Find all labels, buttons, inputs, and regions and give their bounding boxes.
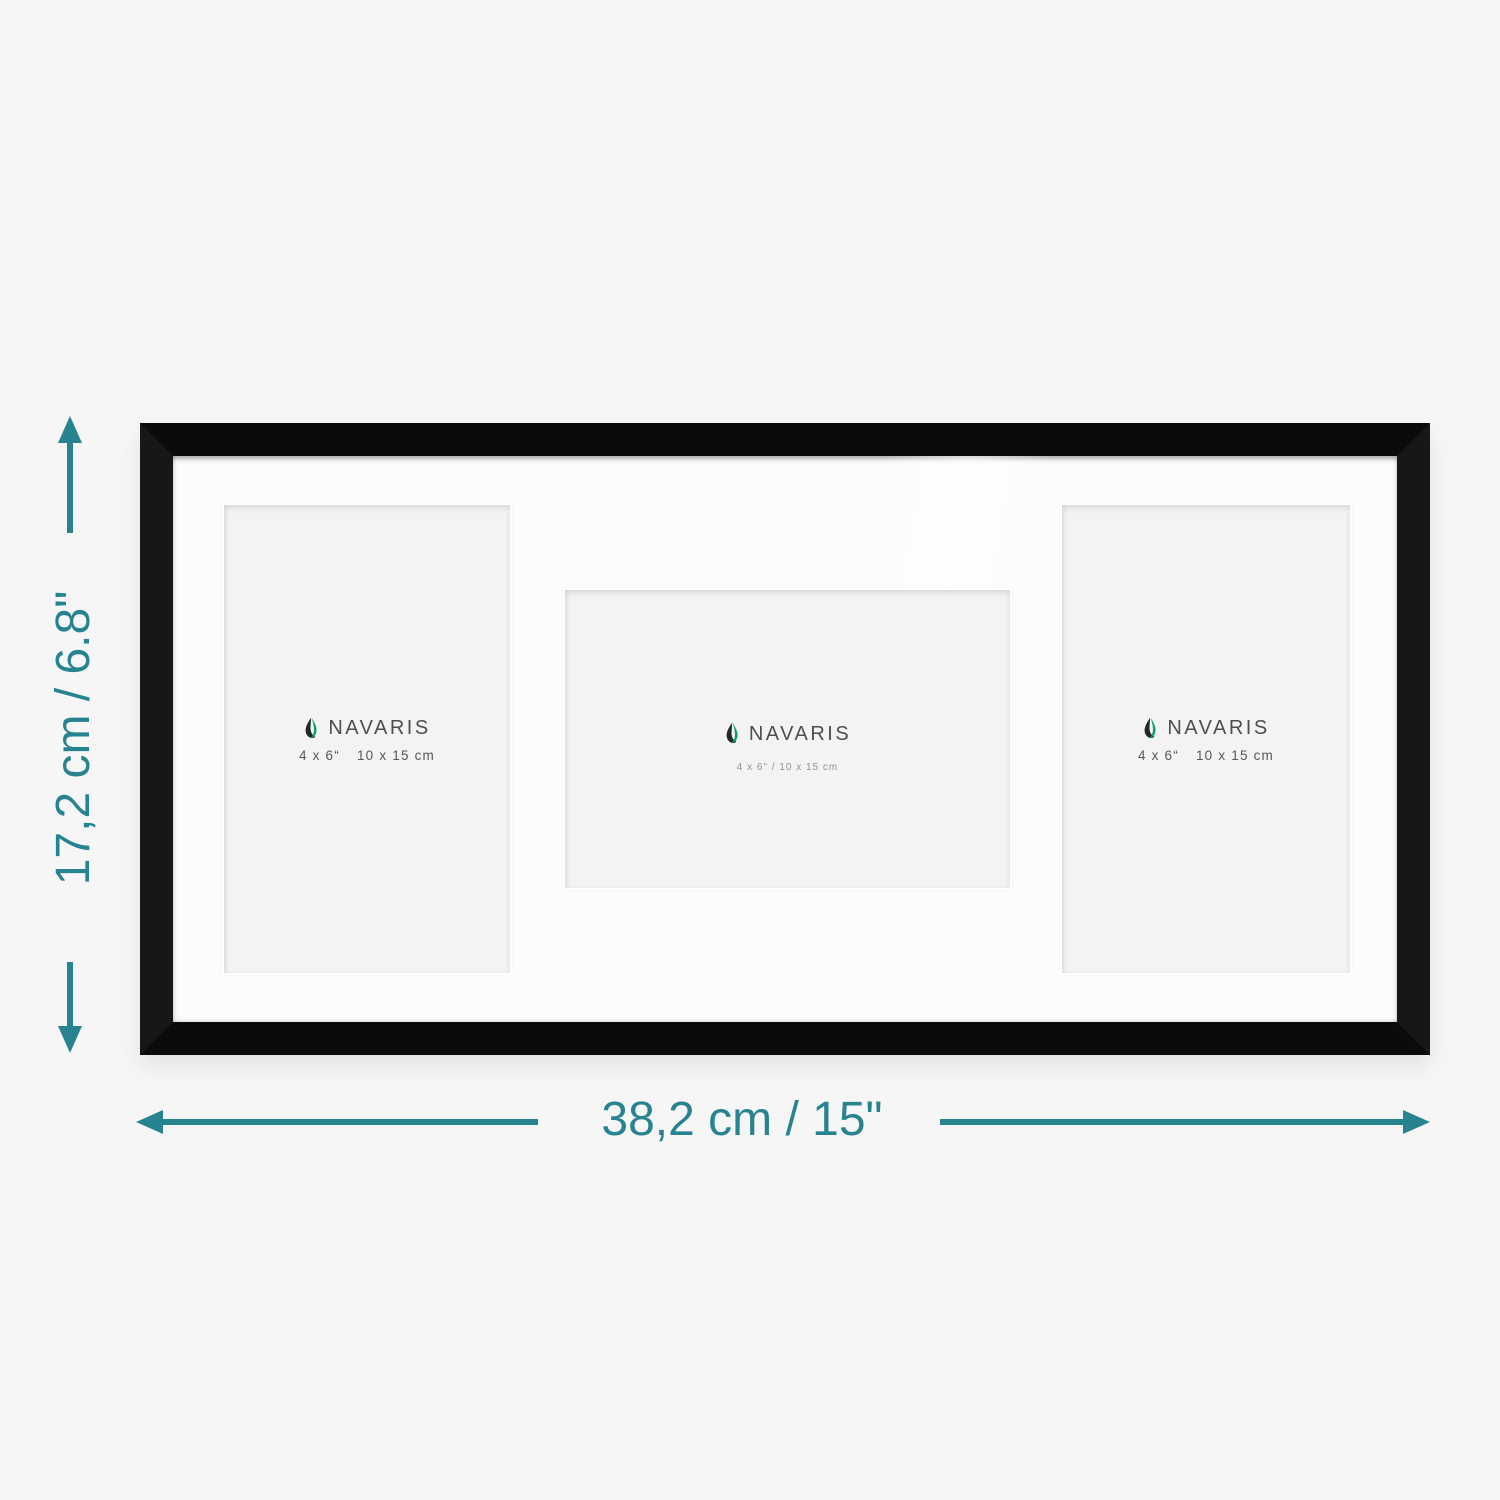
brand-name: NAVARIS — [749, 724, 851, 744]
height-dimension-line-top — [67, 440, 73, 533]
brand-name: NAVARIS — [328, 718, 430, 738]
photo-size-cm: 10 x 15 cm — [357, 749, 435, 763]
photo-opening-left: NAVARIS 4 x 6“ 10 x 15 cm — [222, 503, 512, 975]
picture-frame: NAVARIS 4 x 6“ 10 x 15 cm — [140, 423, 1430, 1055]
placeholder-content: NAVARIS 4 x 6“ 10 x 15 cm — [299, 716, 435, 763]
arrow-left-icon — [136, 1110, 163, 1134]
navaris-logo-icon — [724, 721, 740, 746]
photo-size-inches: 4 x 6“ — [1138, 749, 1179, 763]
size-row: 4 x 6“ 10 x 15 cm — [1138, 749, 1274, 763]
mat-board: NAVARIS 4 x 6“ 10 x 15 cm — [173, 456, 1397, 1022]
photo-size-inches: 4 x 6“ — [299, 749, 340, 763]
navaris-logo-icon — [1142, 716, 1158, 741]
arrow-right-icon — [1403, 1110, 1430, 1134]
height-dimension-line-bottom — [67, 962, 73, 1030]
brand-name: NAVARIS — [1167, 718, 1269, 738]
photo-size-cm: 10 x 15 cm — [1196, 749, 1274, 763]
arrow-up-icon — [58, 416, 82, 443]
width-dimension-line-right — [940, 1119, 1404, 1125]
brand-row: NAVARIS — [303, 716, 430, 741]
photo-opening-right: NAVARIS 4 x 6“ 10 x 15 cm — [1060, 503, 1352, 975]
photo-size-label: 4 x 6" / 10 x 15 cm — [737, 763, 838, 773]
size-row: 4 x 6“ 10 x 15 cm — [299, 749, 435, 763]
arrow-down-icon — [58, 1026, 82, 1053]
width-dimension-label: 38,2 cm / 15" — [542, 1094, 942, 1146]
brand-row: NAVARIS — [1142, 716, 1269, 741]
product-image-scene: 17,2 cm / 6.8" NAVARIS — [0, 0, 1500, 1500]
photo-opening-center: NAVARIS 4 x 6" / 10 x 15 cm — [563, 588, 1012, 890]
navaris-logo-icon — [303, 716, 319, 741]
height-dimension-label: 17,2 cm / 6.8" — [48, 543, 100, 933]
width-dimension-line-left — [161, 1119, 538, 1125]
placeholder-content: NAVARIS 4 x 6" / 10 x 15 cm — [724, 721, 851, 773]
brand-row: NAVARIS — [724, 721, 851, 746]
placeholder-content: NAVARIS 4 x 6“ 10 x 15 cm — [1138, 716, 1274, 763]
